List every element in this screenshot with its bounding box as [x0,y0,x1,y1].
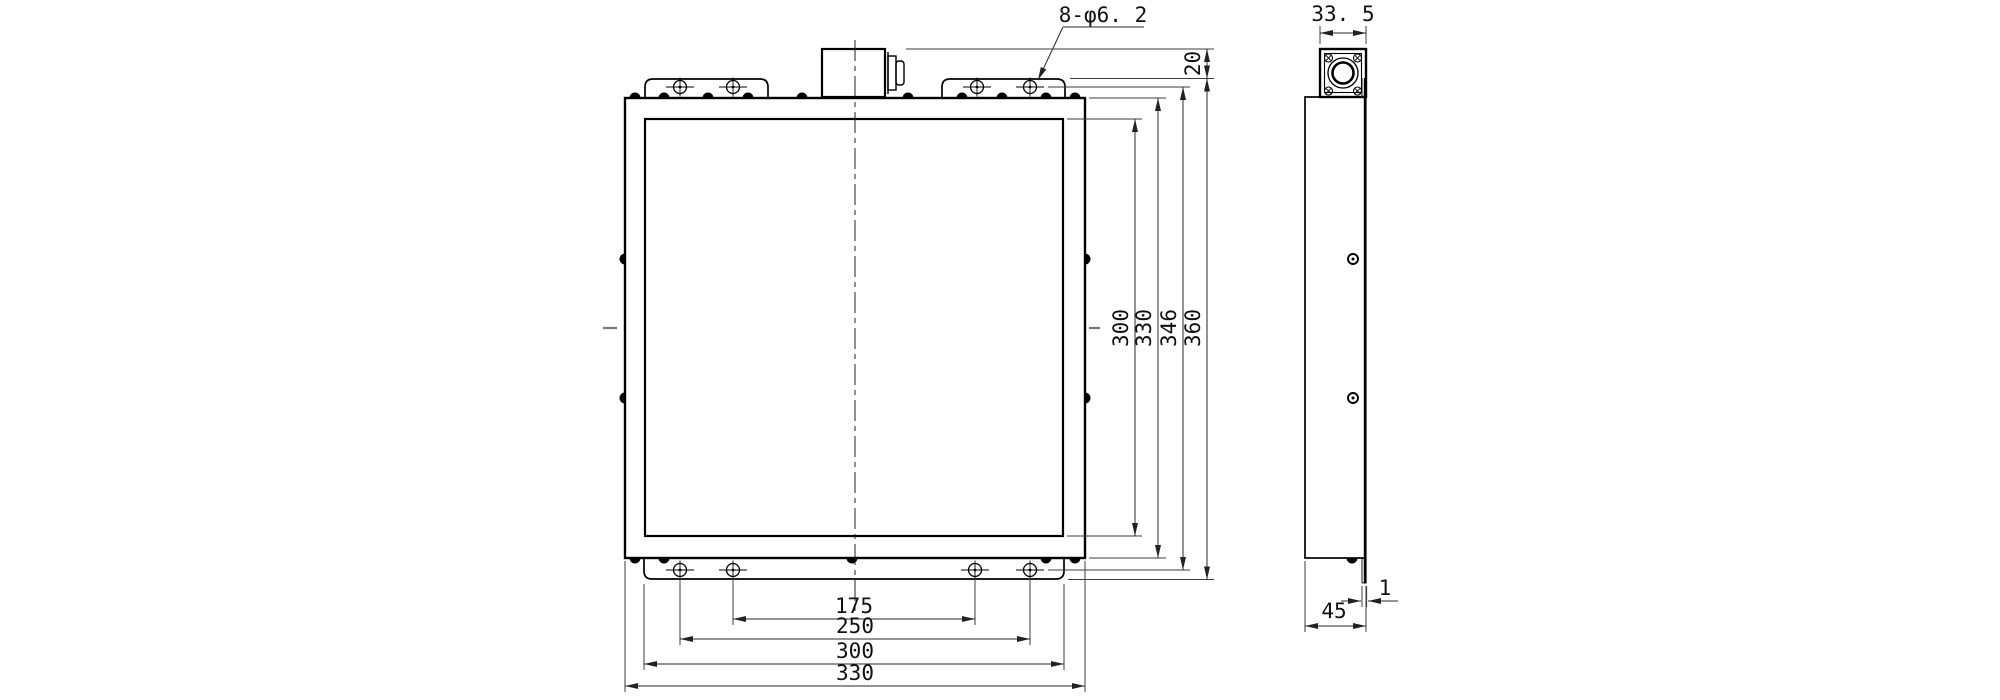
dim-vertical-group: 300 330 346 360 20 [906,49,1214,580]
dim-label-protrusion: 20 [1181,51,1205,76]
side-screw [1348,393,1358,403]
screw-icon [1325,54,1333,62]
mounting-hole [1016,561,1044,580]
edge-bump [1347,558,1358,564]
dim-label-plate-thickness: 1 [1379,576,1392,600]
drawing-canvas: 8-φ6. 2 300 330 346 360 20 [0,0,2000,700]
mounting-hole [719,561,747,580]
mounting-hole [963,78,991,97]
mesh-panel [645,119,1063,536]
connector-flange [888,56,896,90]
mounting-hole [666,78,694,97]
hole-callout-label: 8-φ6. 2 [1059,3,1148,27]
leader-line [1038,27,1063,80]
dim-label-frame-height: 330 [1132,309,1156,347]
dimensions: 8-φ6. 2 300 330 346 360 20 [625,2,1398,692]
mounting-hole [719,78,747,97]
connector-barrel [896,61,904,85]
screw-icon [1354,54,1362,62]
screw-icon [1325,87,1333,95]
side-view [1305,49,1367,583]
dim-label-mesh-height: 300 [1109,309,1133,347]
side-body [1305,97,1365,558]
dim-label-hole-pitch-v: 346 [1157,309,1181,347]
technical-drawing: 8-φ6. 2 300 330 346 360 20 [0,0,2000,700]
front-view [603,40,1100,616]
connector-front [822,49,904,97]
connector-ring-inner [1333,63,1354,84]
dim-hole-callout: 8-φ6. 2 [1038,3,1147,80]
dim-label-tab-width: 300 [836,639,874,663]
dim-label-frame-width: 330 [836,661,874,685]
mounting-hole [666,561,694,580]
screw-icon [1354,87,1362,95]
mounting-hole [961,561,989,580]
dim-label-overall-height: 360 [1181,309,1205,347]
connector-box [822,49,885,97]
dim-label-pitch-outer: 250 [836,614,874,638]
dim-label-depth: 45 [1321,599,1346,623]
connector-side [1320,49,1366,97]
mounting-hole [1016,78,1044,97]
dim-label-connector-width: 33. 5 [1311,2,1374,26]
side-screw [1348,254,1358,264]
